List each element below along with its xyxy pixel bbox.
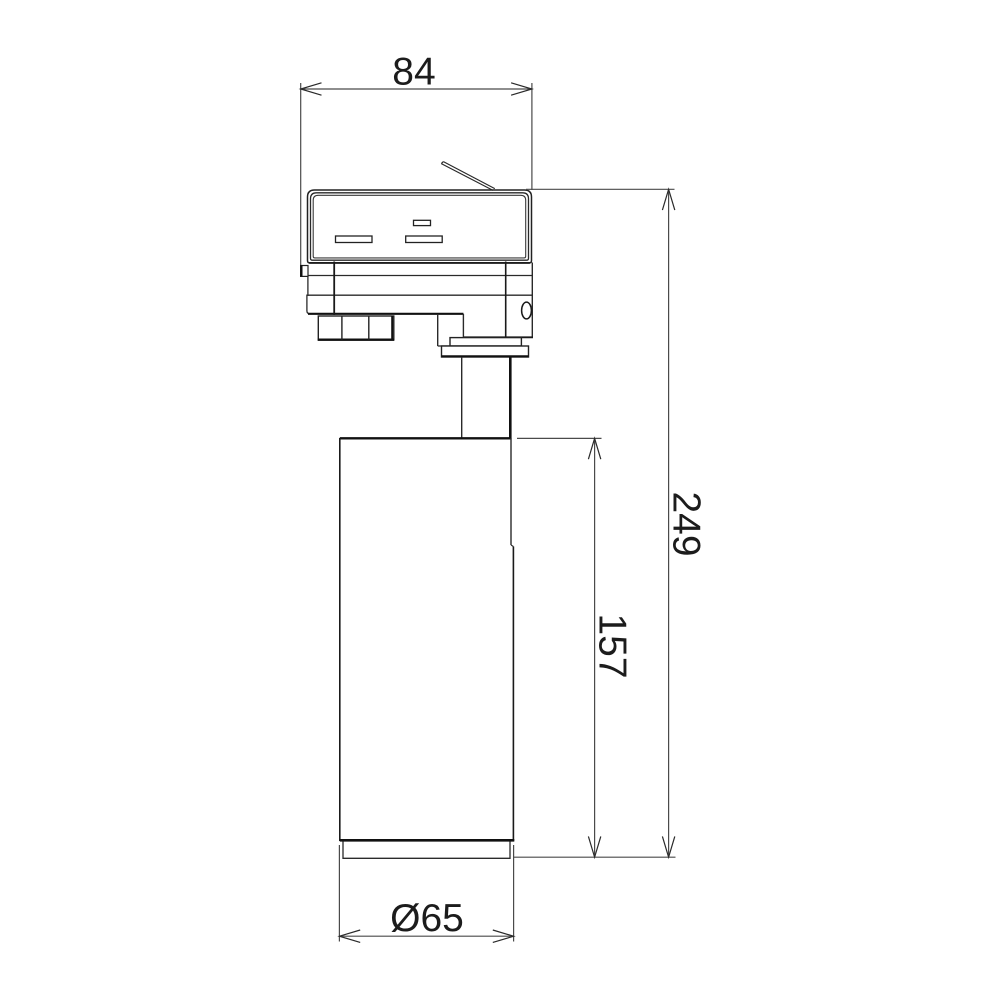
- svg-text:249: 249: [665, 491, 708, 556]
- svg-text:Ø65: Ø65: [390, 897, 464, 940]
- svg-text:84: 84: [392, 51, 435, 94]
- svg-text:157: 157: [591, 613, 634, 678]
